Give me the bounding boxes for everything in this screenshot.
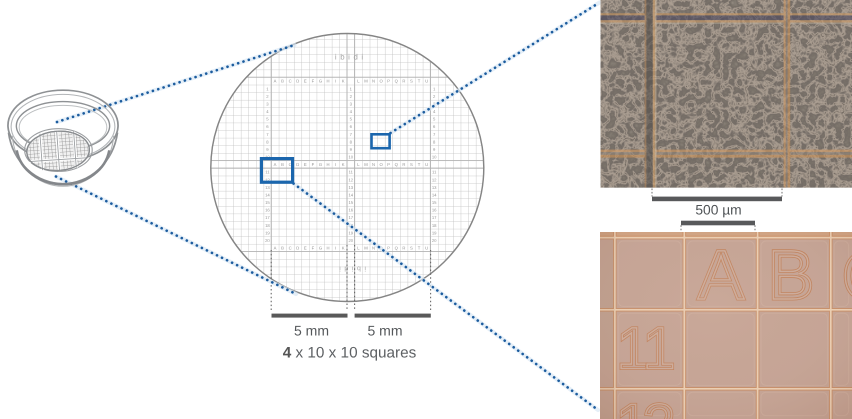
svg-text:E: E [304,162,307,167]
svg-text:I: I [335,246,336,251]
svg-text:R: R [402,162,405,167]
svg-text:12: 12 [348,177,353,182]
svg-text:17: 17 [432,215,437,220]
svg-text:11: 11 [265,170,270,175]
svg-text:ibidi: ibidi [335,53,367,62]
svg-text:4 x 10 x 10 squares: 4 x 10 x 10 squares [283,345,417,362]
svg-text:ibidi: ibidi [336,265,366,273]
svg-text:14: 14 [265,192,270,197]
svg-text:15: 15 [432,200,437,205]
svg-text:G: G [319,246,322,251]
svg-text:U: U [425,79,428,84]
svg-text:U: U [425,162,428,167]
svg-text:16: 16 [348,208,353,213]
svg-text:13: 13 [265,185,270,190]
svg-text:S: S [410,162,413,167]
svg-text:U: U [425,246,428,251]
svg-text:M: M [364,162,368,167]
svg-text:K: K [342,79,345,84]
svg-text:A: A [274,162,277,167]
svg-text:D: D [296,162,299,167]
svg-text:N: N [372,79,375,84]
svg-text:5 mm: 5 mm [294,323,329,339]
svg-text:15: 15 [265,200,270,205]
svg-text:H: H [327,246,330,251]
svg-text:H: H [327,162,330,167]
svg-text:K: K [342,162,345,167]
svg-text:T: T [418,79,421,84]
svg-text:18: 18 [432,223,437,228]
svg-text:12: 12 [432,177,437,182]
svg-text:F: F [312,79,315,84]
svg-text:E: E [304,246,307,251]
svg-text:20: 20 [265,238,270,243]
svg-text:B: B [281,162,284,167]
svg-text:G: G [319,79,322,84]
svg-text:C: C [289,79,292,84]
svg-text:P: P [387,162,390,167]
svg-text:13: 13 [432,185,437,190]
svg-text:5 mm: 5 mm [368,323,403,339]
svg-text:16: 16 [432,208,437,213]
svg-text:T: T [418,162,421,167]
svg-text:14: 14 [432,192,437,197]
svg-text:17: 17 [348,215,353,220]
svg-text:N: N [372,162,375,167]
svg-text:13: 13 [348,185,353,190]
svg-text:10: 10 [432,155,437,160]
svg-text:P: P [387,246,390,251]
svg-text:A: A [274,79,277,84]
svg-text:10: 10 [348,155,353,160]
svg-text:500 µm: 500 µm [695,203,741,218]
svg-text:R: R [402,246,405,251]
svg-text:M: M [364,79,368,84]
svg-text:R: R [402,79,405,84]
svg-text:15: 15 [348,200,353,205]
svg-text:E: E [304,79,307,84]
svg-text:18: 18 [265,223,270,228]
svg-text:S: S [410,79,413,84]
svg-text:S: S [410,246,413,251]
svg-text:K: K [342,246,345,251]
svg-text:19: 19 [432,230,437,235]
svg-text:C: C [289,246,292,251]
svg-text:14: 14 [348,192,353,197]
svg-text:19: 19 [265,230,270,235]
svg-text:A: A [274,246,277,251]
svg-text:20: 20 [348,238,353,243]
svg-text:11: 11 [349,170,354,175]
svg-text:G: G [319,162,322,167]
svg-text:F: F [312,162,315,167]
svg-text:20: 20 [432,238,437,243]
svg-text:D: D [296,246,299,251]
svg-text:H: H [327,79,330,84]
svg-text:11: 11 [432,170,437,175]
svg-text:B: B [281,246,284,251]
svg-text:19: 19 [348,230,353,235]
svg-text:17: 17 [265,215,270,220]
svg-text:16: 16 [265,208,270,213]
svg-text:P: P [387,79,390,84]
svg-text:T: T [418,246,421,251]
svg-text:I: I [335,79,336,84]
svg-text:B: B [281,79,284,84]
svg-text:D: D [296,79,299,84]
svg-text:I: I [335,162,336,167]
svg-text:F: F [312,246,315,251]
svg-text:M: M [364,246,368,251]
